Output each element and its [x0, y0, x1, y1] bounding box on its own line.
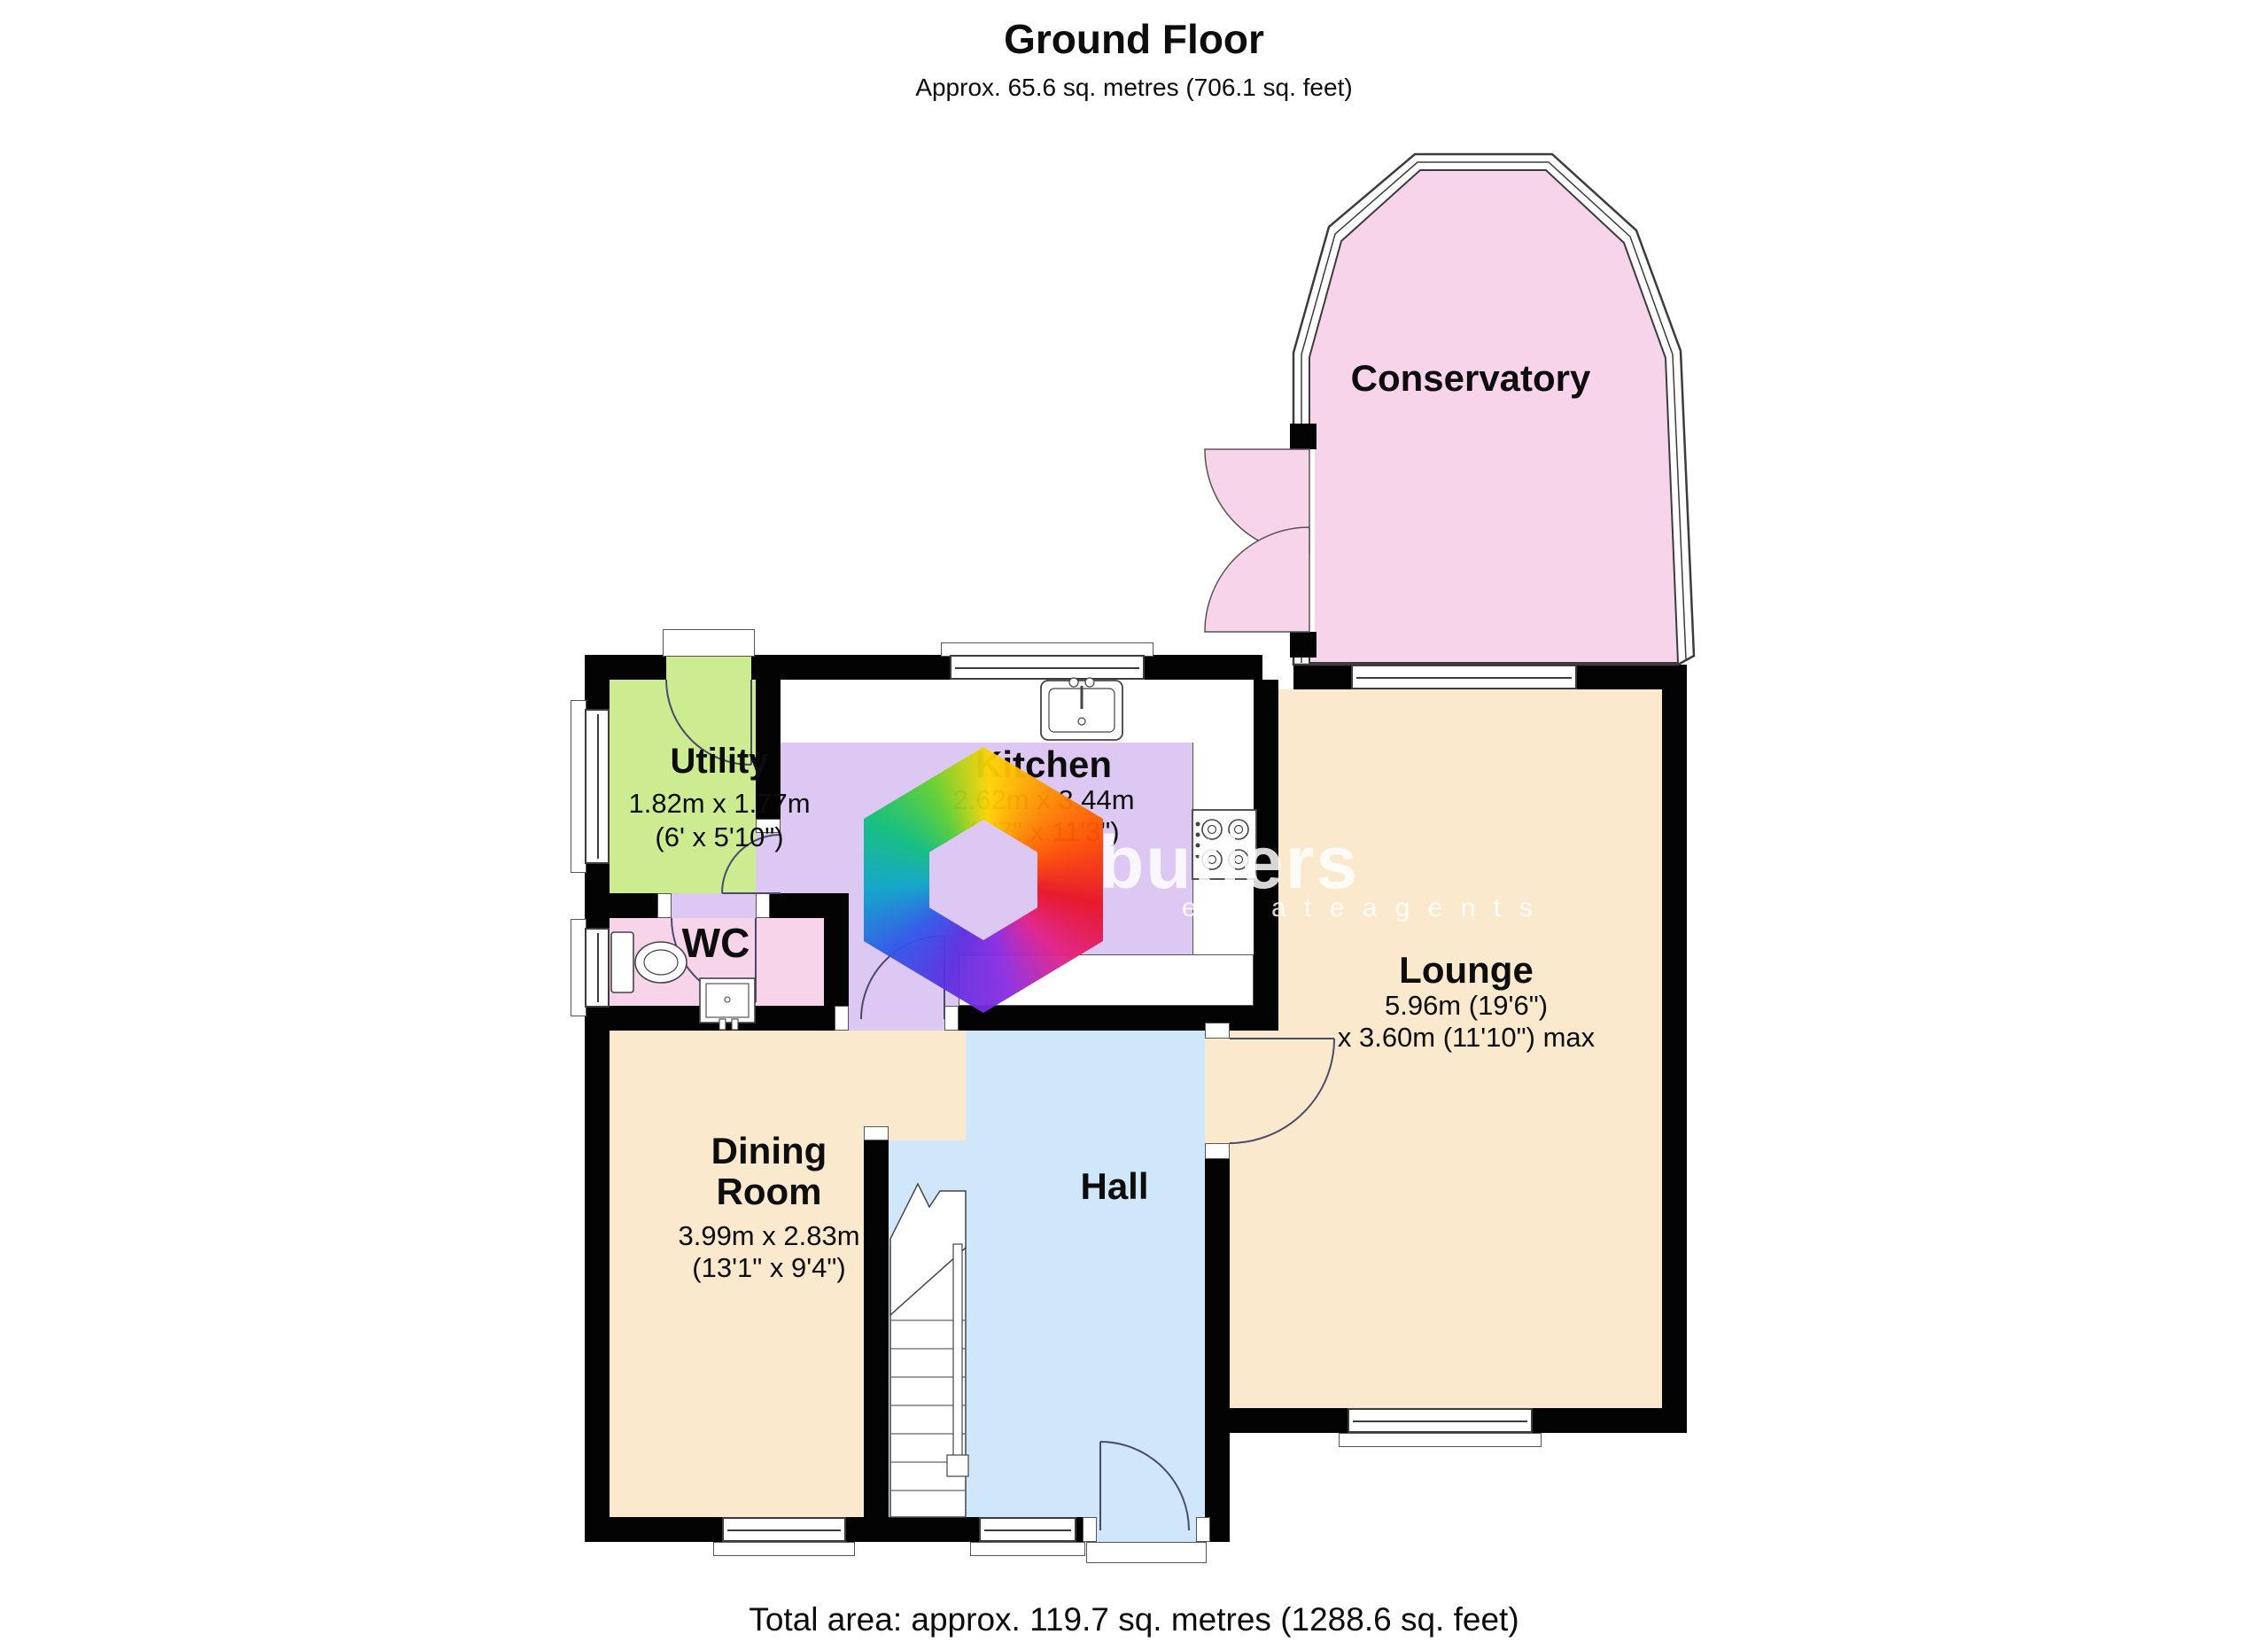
- french-door-opening: [1290, 448, 1315, 634]
- right-wall: [1662, 665, 1687, 1433]
- lounge-label: Lounge: [1399, 950, 1534, 990]
- kitchen-conservatory-gap: [1262, 655, 1293, 680]
- dining-window-sill: [713, 1542, 855, 1556]
- lounge-window-sill: [1339, 1433, 1542, 1447]
- dining-label-line1: Dining: [711, 1131, 827, 1171]
- kitchen-hall-door-gap: [849, 1006, 944, 1031]
- wc-door-gap: [672, 893, 756, 918]
- page-subtitle: Approx. 65.6 sq. metres (706.1 sq. feet): [915, 74, 1352, 101]
- conservatory-outer-wall: [1293, 154, 1694, 665]
- conservatory-mid-frame: [1301, 162, 1686, 663]
- conservatory-label: Conservatory: [1351, 358, 1591, 398]
- french-door-stub-top: [1290, 424, 1317, 449]
- kitchen-door-jamb-right: [944, 1006, 959, 1031]
- french-door-leaf-top: [1205, 449, 1309, 554]
- wc-bottom-wall: [585, 1006, 849, 1031]
- wc-door-jamb-right: [756, 893, 770, 918]
- kitchen-window: [950, 655, 1145, 680]
- watermark-tagline: e s t a t e a g e n t s: [1182, 893, 1537, 923]
- lounge-dims: 5.96m (19'6"): [1385, 991, 1548, 1020]
- kitchen-counter-top: [781, 680, 1254, 743]
- dining-hall-wall: [864, 1140, 889, 1517]
- total-area-footer: Total area: approx. 119.7 sq. metres (12…: [749, 1602, 1518, 1638]
- hall-window-sill: [970, 1542, 1085, 1556]
- floorplan-page: Ground Floor Approx. 65.6 sq. metres (70…: [0, 0, 2268, 1650]
- dining-hall-opening-floor: [889, 1031, 966, 1140]
- utility-window: [585, 709, 610, 864]
- wc-window: [585, 928, 610, 1008]
- front-door-jamb-left: [1083, 1517, 1097, 1542]
- utility-dims: 1.82m x 1.77m: [628, 789, 810, 818]
- french-door-stub-bottom: [1290, 632, 1317, 658]
- conservatory-floor: [1309, 170, 1678, 663]
- utility-door-gap: [666, 655, 751, 680]
- kitchen-door-jamb-left: [835, 1006, 849, 1031]
- conservatory-structure: [1205, 154, 1694, 665]
- dining-dims-imperial: (13'1" x 9'4"): [692, 1253, 845, 1282]
- hall-lounge-door-gap: [1205, 1039, 1230, 1143]
- front-door-jamb-right: [1196, 1517, 1210, 1542]
- lounge-door-jamb-top: [1205, 1023, 1230, 1039]
- lounge-window: [1348, 1408, 1533, 1433]
- conservatory-lounge-window: [1351, 665, 1577, 689]
- dining-dims: 3.99m x 2.83m: [678, 1221, 859, 1250]
- lounge-door-jamb-bottom: [1205, 1143, 1230, 1159]
- hall-window: [979, 1517, 1076, 1542]
- wc-label: WC: [682, 922, 750, 966]
- utility-door-frame: [663, 629, 755, 657]
- front-door-gap: [1097, 1517, 1196, 1542]
- utility-label: Utility: [670, 743, 768, 781]
- french-door-leaf-bottom: [1205, 527, 1309, 632]
- lounge-dims2: x 3.60m (11'10") max: [1338, 1023, 1595, 1052]
- page-title: Ground Floor: [1004, 18, 1264, 62]
- utility-floor: [610, 680, 756, 893]
- hall-label: Hall: [1080, 1166, 1148, 1206]
- wc-door-jamb-left: [657, 893, 672, 918]
- dining-label-line2: Room: [717, 1171, 822, 1211]
- dining-window: [722, 1517, 846, 1542]
- dining-opening-jamb: [864, 1126, 889, 1140]
- utility-dims-imperial: (6' x 5'10"): [655, 822, 783, 852]
- front-door-step: [1086, 1542, 1207, 1563]
